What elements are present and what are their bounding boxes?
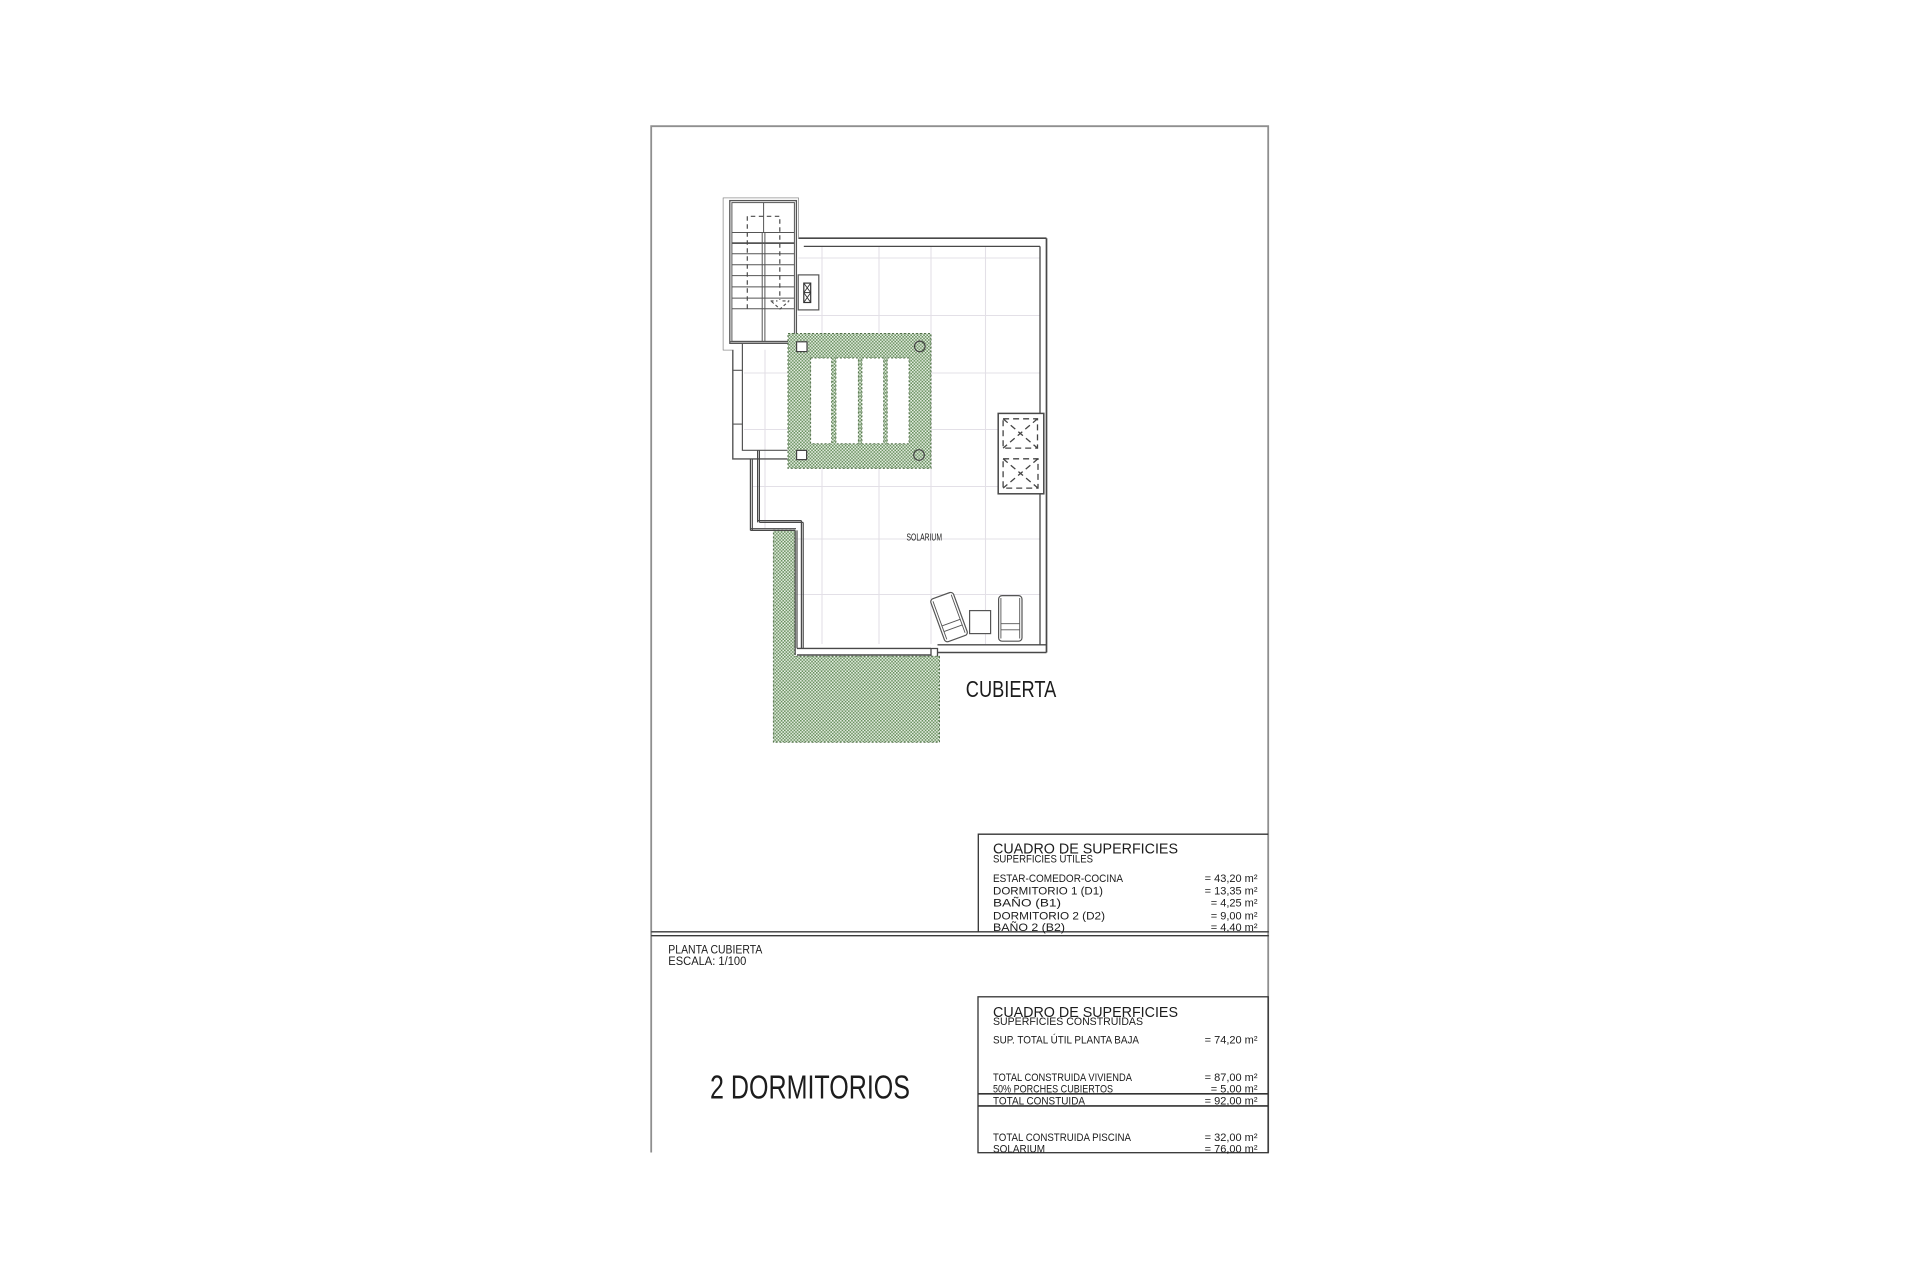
svg-text:DORMITORIO 1 (D1): DORMITORIO 1 (D1) xyxy=(993,885,1103,897)
svg-text:SOLARIUM: SOLARIUM xyxy=(907,533,943,544)
svg-text:= 4,40 m²: = 4,40 m² xyxy=(1211,922,1258,934)
svg-text:ESCALA: 1/100: ESCALA: 1/100 xyxy=(668,956,746,968)
svg-text:= 13,35 m²: = 13,35 m² xyxy=(1205,885,1258,897)
svg-text:= 87,00 m²: = 87,00 m² xyxy=(1205,1072,1258,1084)
svg-text:= 9,00 m²: = 9,00 m² xyxy=(1211,910,1258,922)
svg-text:2 DORMITORIOS: 2 DORMITORIOS xyxy=(710,1068,910,1105)
svg-text:SOLARIUM: SOLARIUM xyxy=(993,1144,1045,1156)
svg-text:BAÑO 2 (B2): BAÑO 2 (B2) xyxy=(993,921,1065,934)
svg-text:TOTAL CONSTRUIDA VIVIENDA: TOTAL CONSTRUIDA VIVIENDA xyxy=(993,1072,1133,1084)
svg-text:SUPERFICIES CONSTRUIDAS: SUPERFICIES CONSTRUIDAS xyxy=(993,1016,1143,1028)
svg-text:SUP. TOTAL ÚTIL PLANTA BAJA: SUP. TOTAL ÚTIL PLANTA BAJA xyxy=(993,1033,1140,1046)
svg-text:= 4,25 m²: = 4,25 m² xyxy=(1211,898,1258,910)
svg-text:PLANTA CUBIERTA: PLANTA CUBIERTA xyxy=(668,944,762,956)
svg-text:= 32,00 m²: = 32,00 m² xyxy=(1205,1132,1258,1144)
svg-text:TOTAL CONSTRUIDA PISCINA: TOTAL CONSTRUIDA PISCINA xyxy=(993,1132,1132,1144)
svg-text:CUBIERTA: CUBIERTA xyxy=(966,676,1057,702)
svg-text:SUPERFICIES ÚTILES: SUPERFICIES ÚTILES xyxy=(993,852,1093,865)
svg-text:= 43,20 m²: = 43,20 m² xyxy=(1205,873,1258,885)
svg-text:= 74,20 m²: = 74,20 m² xyxy=(1205,1034,1258,1046)
svg-text:BAÑO (B1): BAÑO (B1) xyxy=(993,897,1061,910)
svg-text:DORMITORIO 2 (D2): DORMITORIO 2 (D2) xyxy=(993,910,1105,922)
svg-text:ESTAR-COMEDOR-COCINA: ESTAR-COMEDOR-COCINA xyxy=(993,873,1124,885)
svg-text:= 76,00 m²: = 76,00 m² xyxy=(1205,1144,1258,1156)
